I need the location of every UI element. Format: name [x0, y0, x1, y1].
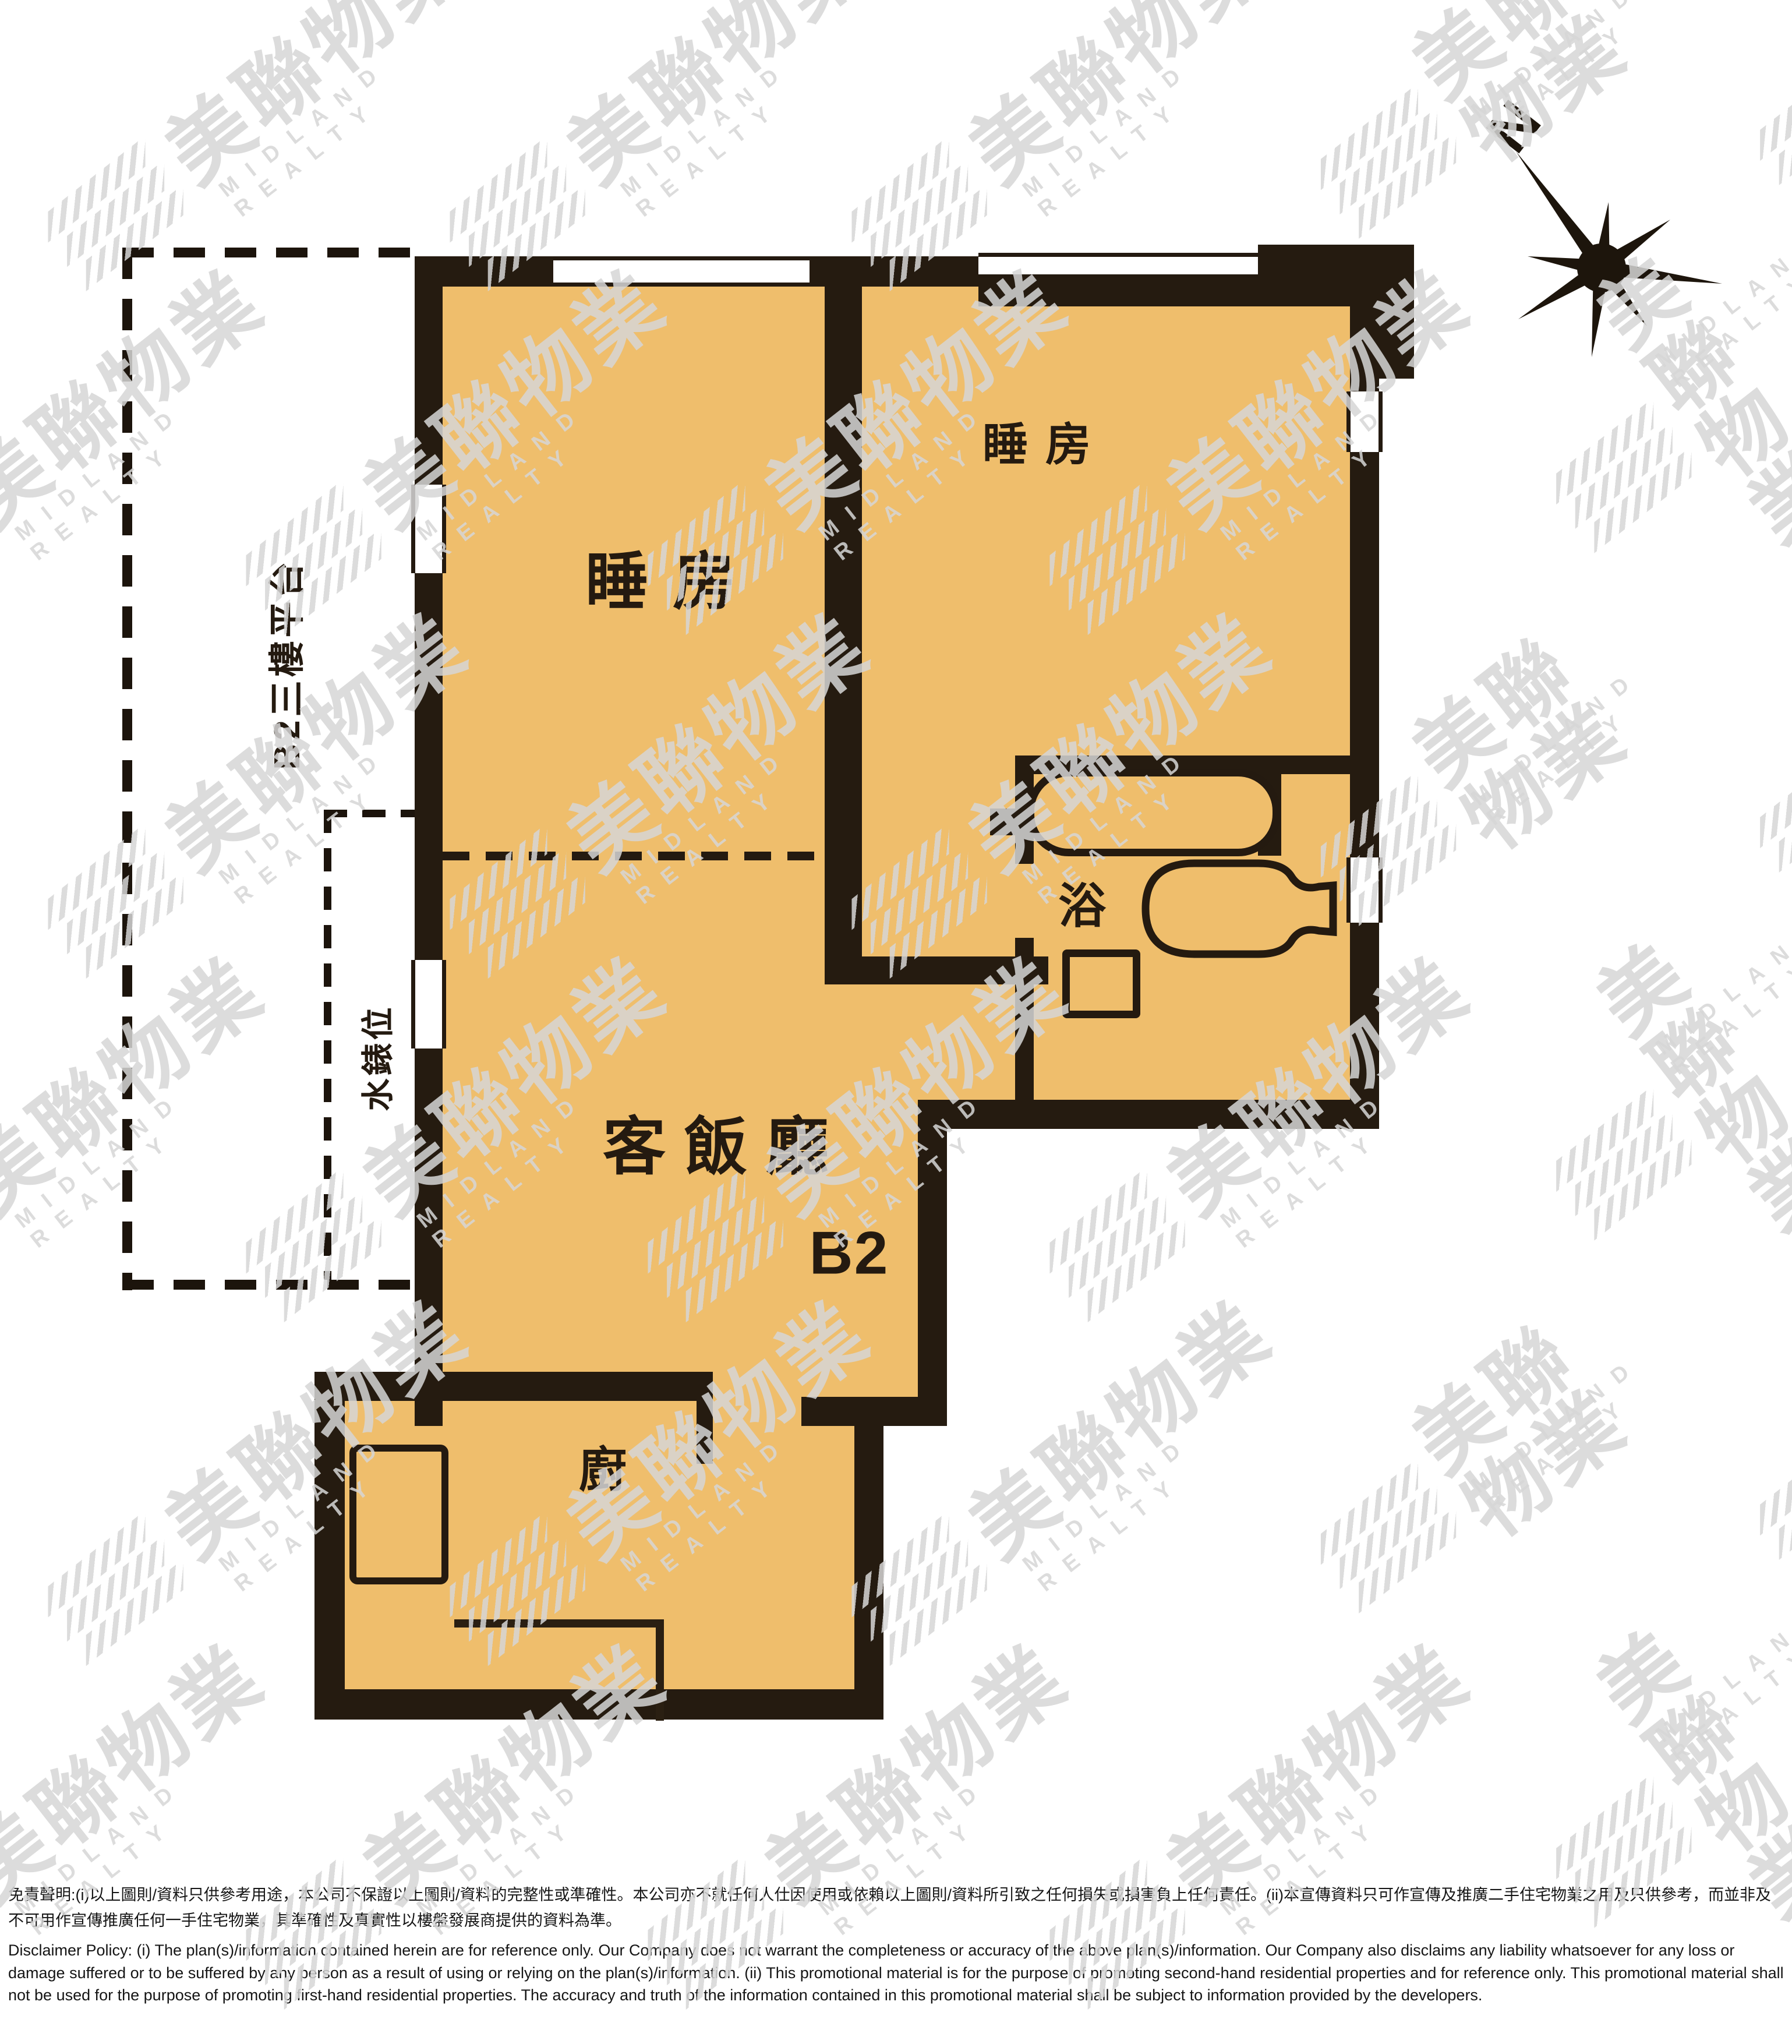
- wall: [825, 285, 862, 984]
- kitchen-appliance: [349, 1445, 448, 1584]
- wall: [854, 1424, 883, 1696]
- wall: [415, 256, 443, 1426]
- window: [411, 485, 446, 573]
- wall: [1015, 938, 1034, 1100]
- wall: [1350, 256, 1379, 1129]
- compass-rose-icon: N: [1427, 47, 1788, 408]
- water-meter-dashed-boundary: [324, 810, 331, 1280]
- bedroom-1-label: 睡房: [585, 531, 760, 622]
- compass-north-label: N: [1474, 89, 1554, 165]
- wall: [314, 1372, 345, 1720]
- bathroom-label: 浴: [1058, 867, 1106, 937]
- wall: [314, 1372, 699, 1401]
- water-meter-dashed-boundary: [324, 810, 415, 817]
- bath-door-jamb: [990, 809, 1016, 835]
- water-meter-label: 水錶位: [352, 1005, 400, 1111]
- bathroom-sink: [1062, 949, 1140, 1018]
- wall: [801, 1397, 947, 1426]
- kitchen-door-jamb: [697, 1372, 713, 1464]
- floor-plan-page: { "plan": { "unit_label": "B2", "compass…: [0, 0, 1792, 1994]
- wall: [1379, 245, 1414, 379]
- bedroom-2-label: 睡房: [982, 408, 1108, 474]
- window: [978, 253, 1258, 278]
- disclaimer-english: Disclaimer Policy: (i) The plan(s)/infor…: [8, 1939, 1784, 2006]
- disclaimer-chinese: 免責聲明:(i)以上圖則/資料只供參考用途，本公司不保證以上圖則/資料的完整性或…: [8, 1883, 1784, 1933]
- kitchen-counter-line: [454, 1619, 664, 1628]
- bathtub: [1027, 769, 1280, 856]
- floor-plan: 睡房 睡房 客飯廳 B2 浴 廚 B2三樓平台 水錶位 N: [0, 0, 1792, 1994]
- platform-dashed-boundary: [122, 248, 132, 1290]
- wall: [918, 1100, 1379, 1129]
- platform-label: B2三樓平台: [257, 558, 310, 769]
- bedroom-open-dashed-line: [443, 852, 825, 860]
- window: [1346, 391, 1383, 452]
- unit-label: B2: [810, 1219, 889, 1288]
- toilet-icon: [1139, 855, 1354, 963]
- wall: [314, 1689, 883, 1720]
- disclaimer: 免責聲明:(i)以上圖則/資料只供參考用途，本公司不保證以上圖則/資料的完整性或…: [8, 1883, 1784, 2006]
- kitchen-label: 廚: [579, 1431, 627, 1501]
- window: [553, 256, 810, 287]
- wall: [918, 1100, 947, 1426]
- living-dining-label: 客飯廳: [603, 1096, 847, 1187]
- platform-dashed-boundary: [122, 248, 415, 257]
- window: [411, 960, 446, 1049]
- platform-dashed-boundary: [122, 1280, 415, 1290]
- kitchen-counter-line: [656, 1619, 664, 1721]
